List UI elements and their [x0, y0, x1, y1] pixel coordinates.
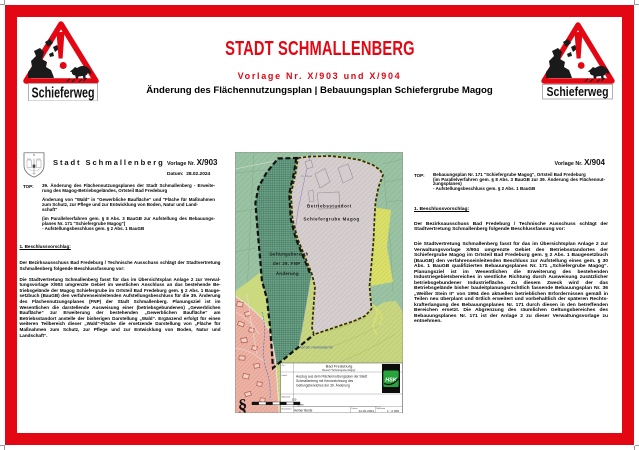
svg-text:Heiner Beste: Heiner Beste	[294, 408, 313, 412]
svg-text:Auf der Hexenwäsche: Auf der Hexenwäsche	[299, 346, 333, 350]
svg-text:Bearbeiter: Bearbeiter	[282, 408, 292, 411]
svg-text:Schiefergrube Magog: Schiefergrube Magog	[304, 217, 360, 222]
svg-text:Maßstab: Maßstab	[377, 407, 386, 410]
svg-text:Maßstab: Maßstab	[282, 396, 291, 399]
svg-text:Geltungsbereich: Geltungsbereich	[270, 252, 309, 257]
svg-text:§: §	[238, 397, 247, 413]
svg-text:1 : 2.000: 1 : 2.000	[387, 409, 399, 413]
svg-text:Schieferweg: Schieferweg	[32, 84, 95, 101]
svg-text:Änderung: Änderung	[276, 271, 299, 276]
svg-text:12.02.2024: 12.02.2024	[359, 409, 375, 413]
svg-text:Betriebsstandort: Betriebsstandort	[307, 204, 352, 209]
svg-text:Datum: Datum	[352, 407, 358, 410]
svg-text:Schieferweg: Schieferweg	[547, 84, 609, 99]
svg-text:der 39. FNP: der 39. FNP	[273, 261, 300, 266]
svg-text:Inhalt: Inhalt	[282, 374, 288, 377]
svg-text:100: 100	[292, 398, 297, 402]
svg-text:Bereich "Schiefergrube Magog": Bereich "Schiefergrube Magog"	[322, 369, 355, 372]
svg-text:HSK: HSK	[385, 378, 398, 384]
svg-text:Schmallenberg mit Kennzeichnun: Schmallenberg mit Kennzeichnung des	[296, 379, 354, 383]
svg-text:Auszug aus dem Flächennutzungs: Auszug aus dem Flächennutzungsplan der S…	[296, 375, 367, 379]
svg-text:Im Bauer: Im Bauer	[301, 174, 312, 178]
svg-text:Ort: Ort	[282, 364, 285, 367]
svg-text:Bad Fredeburg: Bad Fredeburg	[326, 364, 353, 369]
svg-text:Geltungsbereiches der 39. Ände: Geltungsbereiches der 39. Änderung	[296, 384, 350, 388]
